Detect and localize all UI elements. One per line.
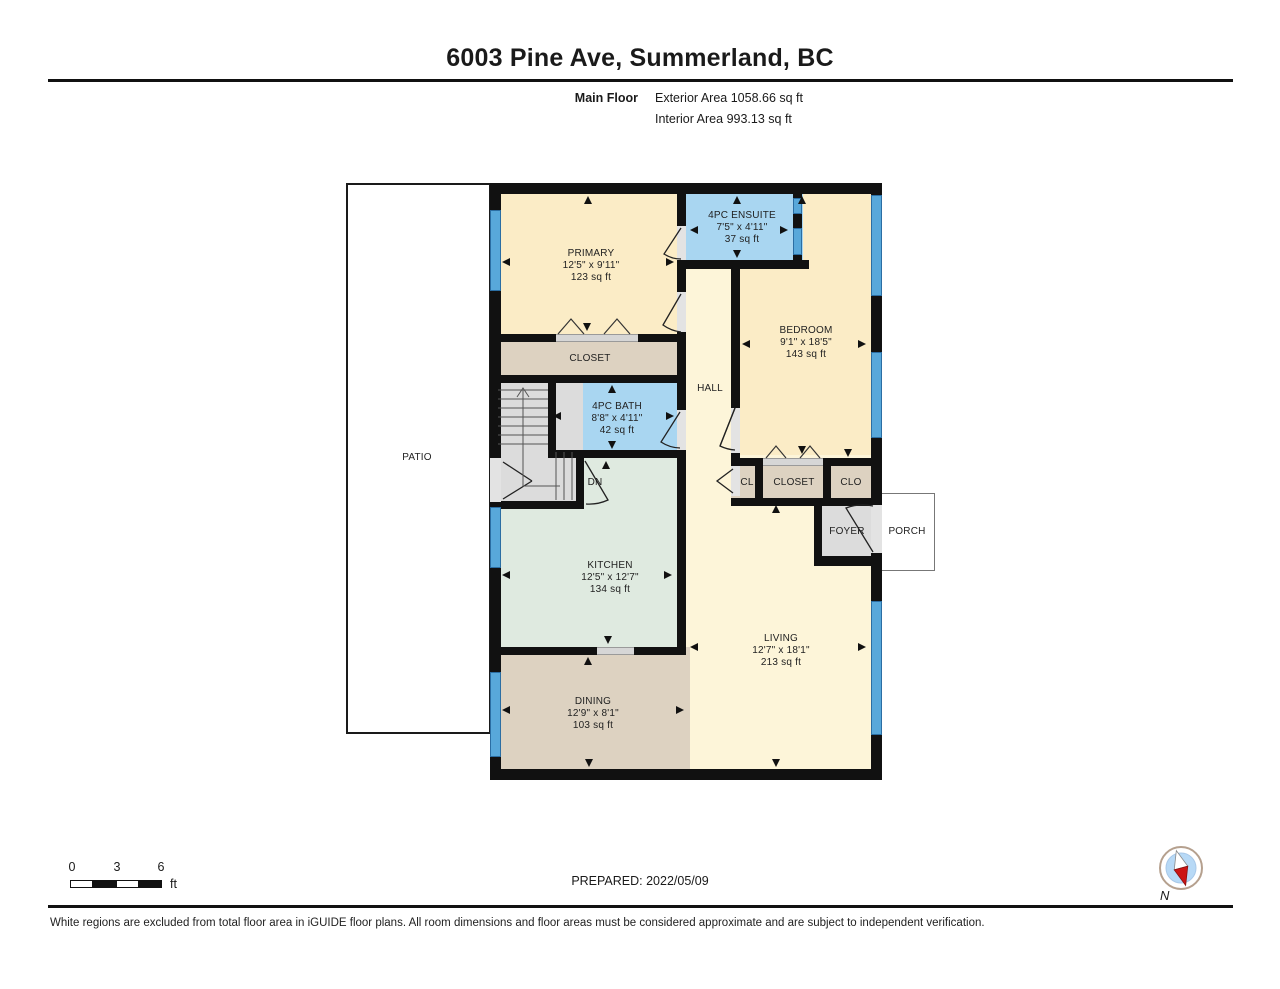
stairs-dn-label: DN bbox=[588, 477, 603, 489]
north-label: N bbox=[1160, 888, 1169, 903]
room-label-bedroom: BEDROOM 9'1" x 18'5" 143 sq ft bbox=[779, 325, 832, 361]
prepared-date: PREPARED: 2022/05/09 bbox=[0, 874, 1280, 888]
room-label-porch: PORCH bbox=[888, 526, 925, 538]
scale-tick-0: 0 bbox=[69, 860, 76, 874]
room-label-dining: DINING 12'9" x 8'1" 103 sq ft bbox=[567, 696, 619, 732]
dimension-arrow bbox=[858, 643, 866, 651]
room-dims: 9'1" x 18'5" bbox=[779, 337, 832, 349]
dimension-arrow bbox=[583, 323, 591, 331]
room-label-foyer: FOYER bbox=[829, 526, 864, 538]
dimension-arrow bbox=[690, 226, 698, 234]
room-name: KITCHEN bbox=[581, 560, 638, 572]
room-label-kitchen: KITCHEN 12'5" x 12'7" 134 sq ft bbox=[581, 560, 638, 596]
dimension-arrow bbox=[664, 571, 672, 579]
stairs-icon bbox=[498, 388, 572, 500]
dimension-arrow bbox=[608, 385, 616, 393]
door-swings bbox=[503, 228, 873, 552]
dimension-arrow bbox=[676, 706, 684, 714]
disclaimer-text: White regions are excluded from total fl… bbox=[50, 917, 985, 929]
dimension-arrow bbox=[608, 441, 616, 449]
room-area: 42 sq ft bbox=[592, 425, 643, 437]
room-name: BEDROOM bbox=[779, 325, 832, 337]
dimension-arrow bbox=[666, 258, 674, 266]
room-name: DINING bbox=[567, 696, 619, 708]
room-area: 123 sq ft bbox=[563, 272, 620, 284]
room-dims: 12'9" x 8'1" bbox=[567, 708, 619, 720]
dimension-arrow bbox=[798, 446, 806, 454]
dimension-arrow bbox=[502, 571, 510, 579]
scale-tick-6: 6 bbox=[158, 860, 165, 874]
room-label-ensuite: 4PC ENSUITE 7'5" x 4'11" 37 sq ft bbox=[708, 210, 776, 246]
room-name: 4PC ENSUITE bbox=[708, 210, 776, 222]
dimension-arrow bbox=[772, 505, 780, 513]
room-area: 213 sq ft bbox=[752, 657, 809, 669]
room-label-cl: CL bbox=[740, 477, 753, 489]
dimension-arrow bbox=[690, 643, 698, 651]
room-area: 103 sq ft bbox=[567, 720, 619, 732]
room-dims: 12'5" x 9'11" bbox=[563, 260, 620, 272]
dimension-arrow bbox=[584, 196, 592, 204]
room-label-patio: PATIO bbox=[402, 452, 432, 464]
room-label-primary: PRIMARY 12'5" x 9'11" 123 sq ft bbox=[563, 248, 620, 284]
floor-plan-page: 6003 Pine Ave, Summerland, BC Main Floor… bbox=[0, 0, 1280, 989]
dimension-arrow bbox=[666, 412, 674, 420]
dimension-arrow bbox=[602, 461, 610, 469]
dimension-arrow bbox=[844, 449, 852, 457]
room-label-primary-closet: CLOSET bbox=[569, 353, 610, 365]
room-name: LIVING bbox=[752, 633, 809, 645]
room-area: 134 sq ft bbox=[581, 584, 638, 596]
room-label-bath: 4PC BATH 8'8" x 4'11" 42 sq ft bbox=[592, 401, 643, 437]
room-label-living: LIVING 12'7" x 18'1" 213 sq ft bbox=[752, 633, 809, 669]
room-area: 37 sq ft bbox=[708, 234, 776, 246]
dimension-arrow bbox=[604, 636, 612, 644]
dimension-arrow bbox=[733, 196, 741, 204]
dimension-arrow bbox=[502, 258, 510, 266]
room-dims: 7'5" x 4'11" bbox=[708, 222, 776, 234]
room-dims: 8'8" x 4'11" bbox=[592, 413, 643, 425]
plan-linework bbox=[0, 0, 1280, 989]
dimension-arrow bbox=[858, 340, 866, 348]
room-name: PRIMARY bbox=[563, 248, 620, 260]
room-name: 4PC BATH bbox=[592, 401, 643, 413]
dimension-arrow bbox=[584, 657, 592, 665]
room-label-bedroom-closet: CLOSET bbox=[773, 477, 814, 489]
room-dims: 12'7" x 18'1" bbox=[752, 645, 809, 657]
dimension-arrow bbox=[585, 759, 593, 767]
dimension-arrow bbox=[780, 226, 788, 234]
room-label-hall: HALL bbox=[697, 383, 723, 395]
dimension-arrow bbox=[502, 706, 510, 714]
footer-rule bbox=[48, 905, 1233, 908]
room-area: 143 sq ft bbox=[779, 349, 832, 361]
dimension-arrow bbox=[553, 412, 561, 420]
dimension-arrow bbox=[742, 340, 750, 348]
dimension-arrow bbox=[798, 196, 806, 204]
dimension-arrow bbox=[772, 759, 780, 767]
room-label-clo: CLO bbox=[840, 477, 861, 489]
dimension-arrow bbox=[733, 250, 741, 258]
scale-tick-3: 3 bbox=[114, 860, 121, 874]
room-dims: 12'5" x 12'7" bbox=[581, 572, 638, 584]
